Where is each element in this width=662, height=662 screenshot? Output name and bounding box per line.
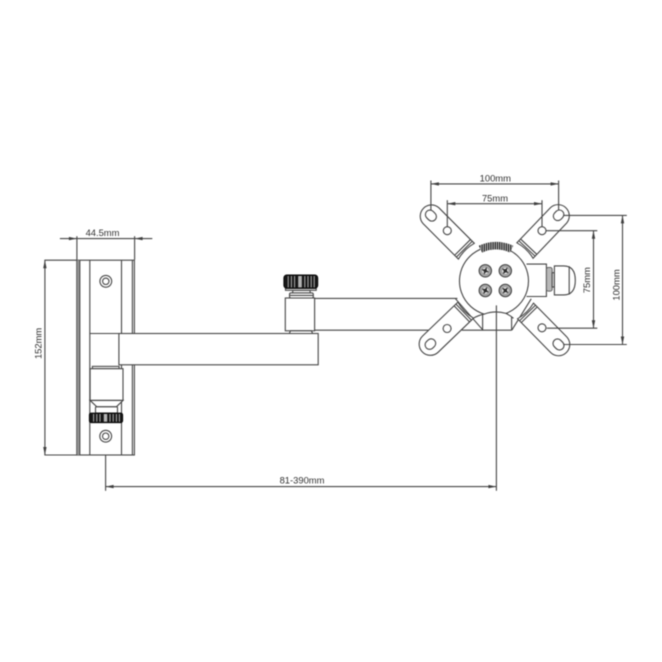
svg-text:152mm: 152mm [32, 328, 43, 359]
svg-text:75mm: 75mm [581, 267, 592, 293]
svg-text:75mm: 75mm [482, 192, 508, 203]
svg-text:44.5mm: 44.5mm [86, 227, 120, 238]
svg-text:81-390mm: 81-390mm [280, 475, 325, 486]
svg-text:100mm: 100mm [611, 269, 622, 300]
svg-text:100mm: 100mm [480, 172, 511, 183]
